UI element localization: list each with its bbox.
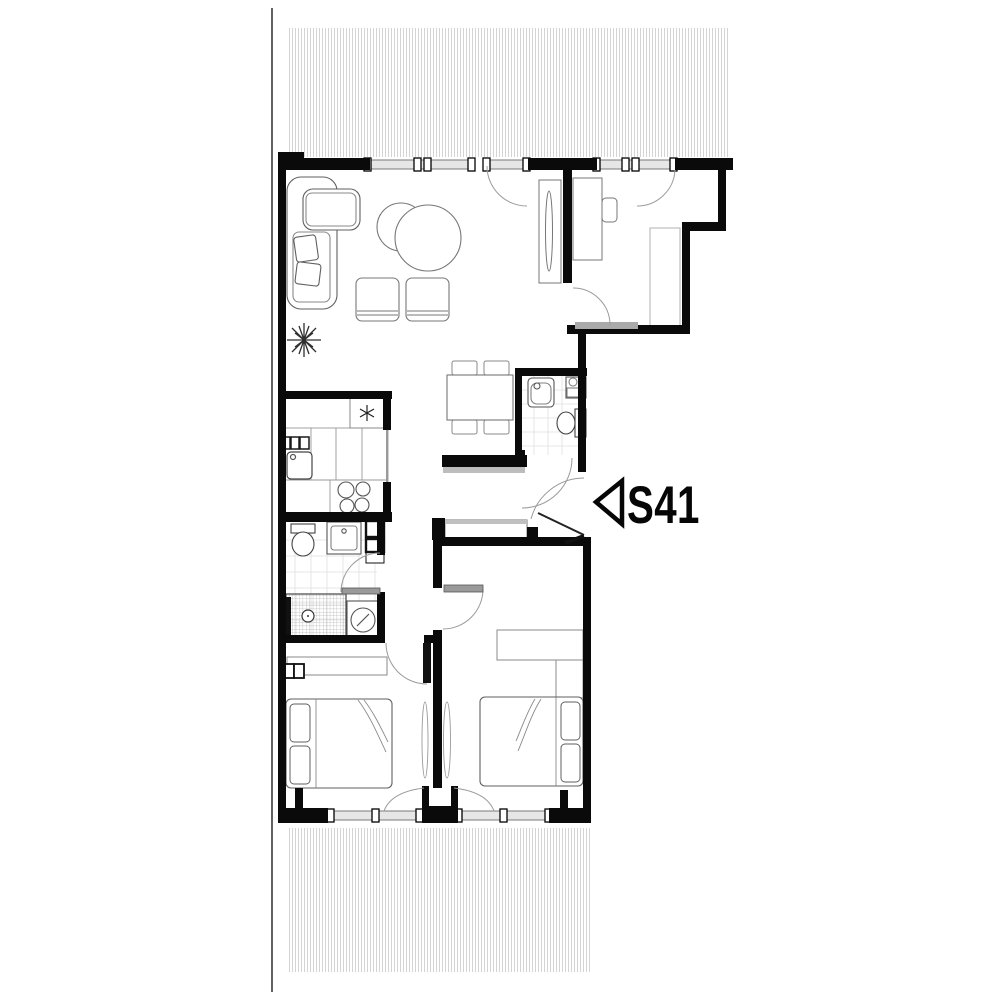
terrace-bottom bbox=[287, 828, 590, 972]
sideboard bbox=[445, 520, 527, 538]
bed-1 bbox=[286, 699, 392, 788]
living-hall-door bbox=[573, 288, 610, 325]
washing-machine bbox=[347, 601, 379, 639]
pillow bbox=[561, 702, 580, 740]
terrace-top bbox=[287, 28, 728, 157]
cooktop bbox=[338, 482, 370, 513]
unit-label: S41 bbox=[627, 475, 700, 535]
floor-plan-canvas: S41 bbox=[0, 0, 1000, 1000]
panel-radiator bbox=[422, 702, 428, 778]
fridge-snowflake-icon bbox=[360, 405, 374, 421]
kitchen-appliance-boxes bbox=[282, 437, 309, 449]
radiator bbox=[284, 664, 304, 678]
plant-icon bbox=[287, 323, 321, 357]
triangle-left-icon bbox=[596, 481, 622, 524]
corner-sofa bbox=[287, 177, 360, 309]
unit-marker: S41 bbox=[596, 475, 700, 535]
bedroom2-door bbox=[443, 589, 483, 629]
kitchen-sink bbox=[287, 452, 312, 479]
wardrobe bbox=[497, 630, 583, 698]
wc-door bbox=[522, 458, 572, 508]
bed-2 bbox=[480, 697, 583, 786]
balcony-door-bedroom1 bbox=[384, 788, 424, 811]
wall-lintel bbox=[443, 467, 525, 473]
vanity-sink bbox=[327, 522, 361, 554]
bathroom-toilet bbox=[291, 524, 315, 556]
wc-sink bbox=[528, 378, 554, 407]
desk-chair bbox=[602, 198, 617, 222]
shower bbox=[286, 594, 346, 640]
ottomans bbox=[356, 278, 449, 321]
terrace-door-study bbox=[637, 170, 675, 206]
pillow bbox=[290, 704, 310, 742]
coffee-tables bbox=[377, 203, 461, 271]
wall-lintel bbox=[575, 322, 638, 329]
terrace-door-living bbox=[487, 166, 527, 206]
fridge bbox=[350, 398, 384, 428]
pillow bbox=[290, 746, 310, 784]
tv-cabinet bbox=[539, 180, 561, 283]
panel-radiator bbox=[444, 702, 451, 778]
floor-plan-page: S41 bbox=[0, 0, 1000, 1000]
desk bbox=[573, 178, 617, 260]
dining-table bbox=[447, 375, 513, 420]
closet bbox=[650, 228, 680, 327]
pillow bbox=[561, 744, 580, 782]
bedroom1-door bbox=[386, 643, 427, 684]
balcony-door-bedroom2 bbox=[454, 788, 494, 811]
